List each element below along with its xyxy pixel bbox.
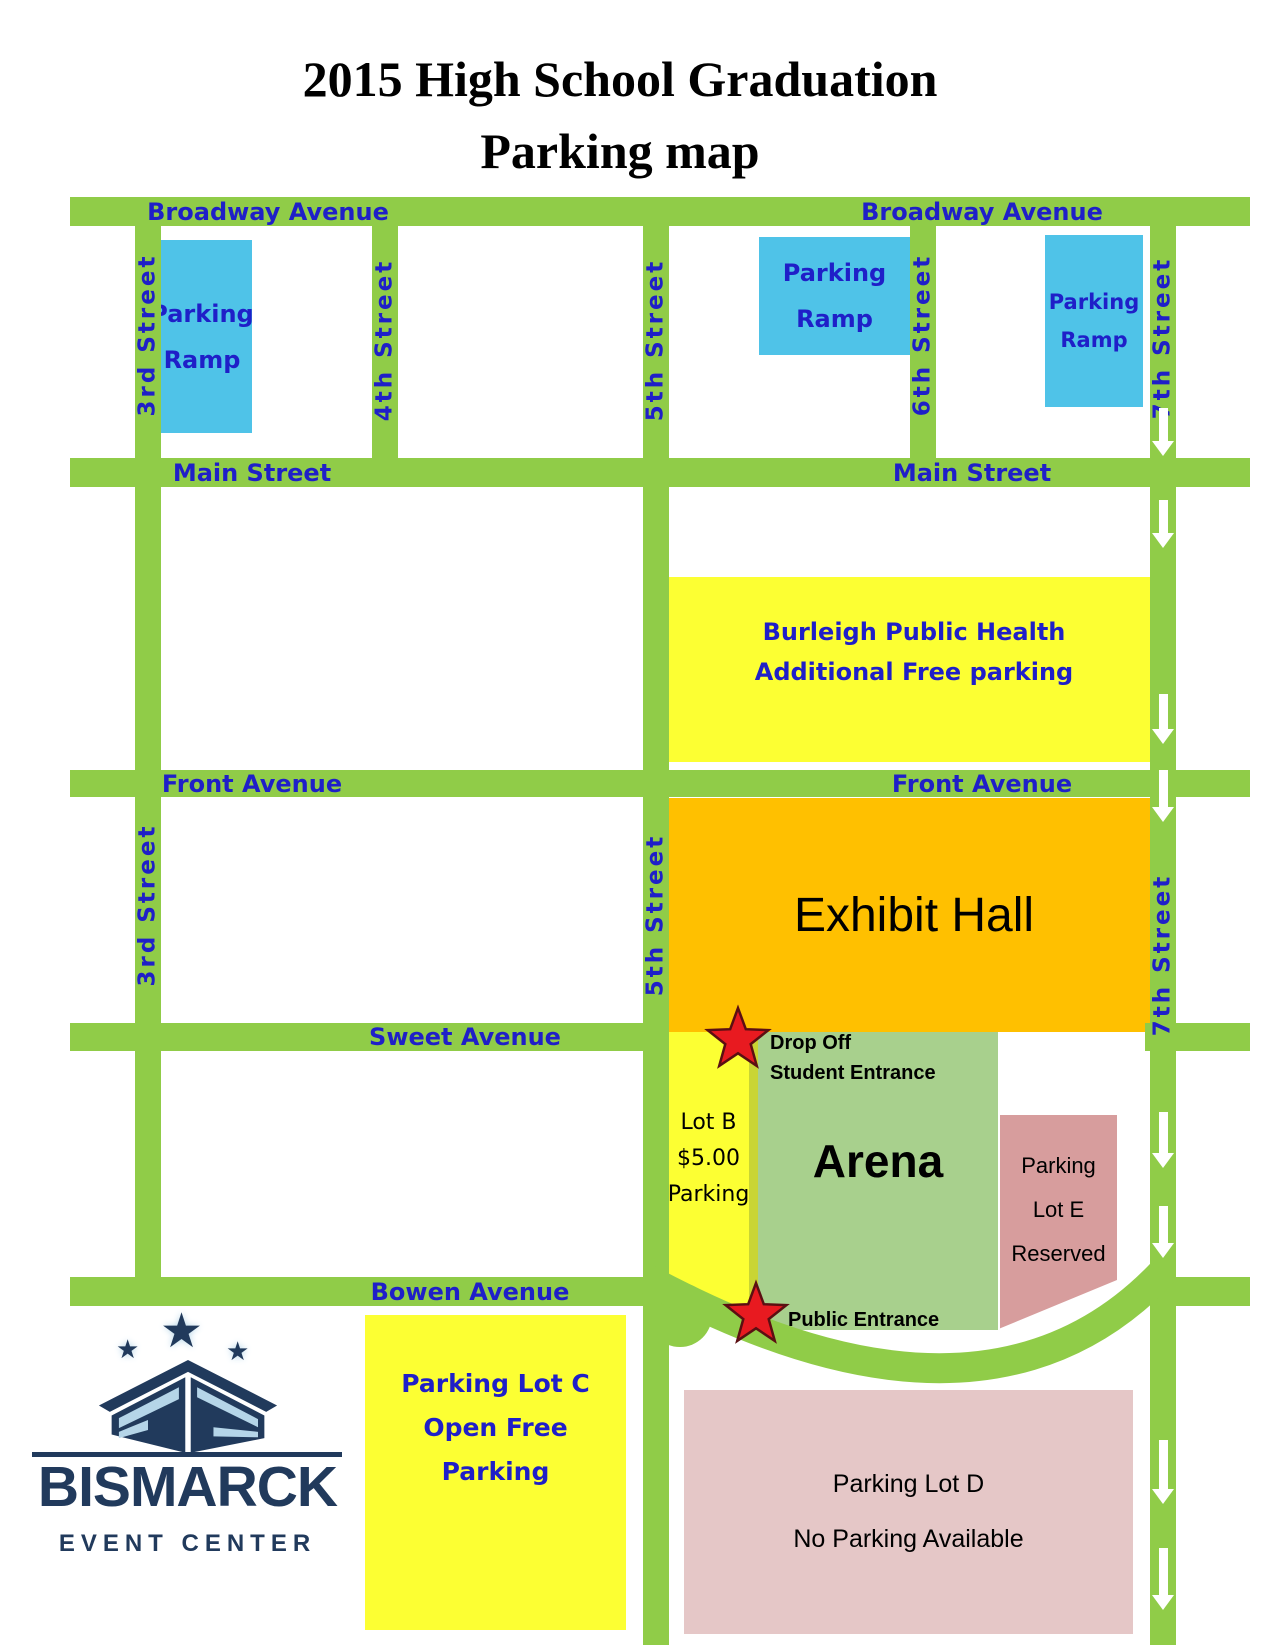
one-way-arrow-icon <box>1152 408 1174 456</box>
exhibit-hall: Exhibit Hall <box>668 798 1160 1032</box>
parking-ramp-1-label-line2: Ramp <box>164 346 241 374</box>
lot-b-label-line1: Lot B <box>680 1110 736 1135</box>
one-way-arrow-icon <box>1152 1206 1174 1258</box>
broadway-avenue-label-east: Broadway Avenue <box>861 200 1103 224</box>
parking-ramp-1: Parking Ramp <box>152 240 252 433</box>
arena-label: Arena <box>813 1134 943 1188</box>
one-way-arrow-icon <box>1152 770 1174 822</box>
sixth-street-label: 6th Street <box>912 254 935 416</box>
lot-e-label-line3: Reserved <box>1011 1241 1105 1267</box>
one-way-arrow-icon <box>1152 1440 1174 1504</box>
parking-lot-e: Parking Lot E Reserved <box>1000 1115 1117 1335</box>
burleigh-label-line2: Additional Free parking <box>755 658 1073 686</box>
parking-ramp-3-label-line2: Ramp <box>1060 328 1127 352</box>
parking-map-page: 2015 High School Graduation Parking map … <box>0 0 1275 1650</box>
drop-off-label: Drop Off Student Entrance <box>770 1028 936 1088</box>
arrow-head <box>1152 1489 1174 1504</box>
seventh-street-label-lower: 7th Street <box>1152 874 1175 1036</box>
arrow-head <box>1152 1153 1174 1168</box>
arrow-head <box>1152 729 1174 744</box>
broadway-avenue-label-west: Broadway Avenue <box>147 200 389 224</box>
one-way-arrow-icon <box>1152 1548 1174 1610</box>
arrow-head <box>1152 807 1174 822</box>
arrow-shaft <box>1159 408 1168 441</box>
map-title-line2: Parking map <box>0 122 1240 180</box>
lot-c-label-line3: Parking <box>442 1457 550 1486</box>
public-entrance-label: Public Entrance <box>788 1305 939 1335</box>
arrow-shaft <box>1159 694 1168 729</box>
logo-building-icon <box>92 1360 284 1460</box>
lot-b-label-line2: $5.00 <box>677 1146 740 1171</box>
drop-off-label-line1: Drop Off <box>770 1028 936 1058</box>
lot-c-label-line2: Open Free <box>423 1413 567 1442</box>
parking-ramp-2-label-line2: Ramp <box>796 305 873 333</box>
parking-lot-c: Parking Lot C Open Free Parking <box>365 1315 626 1630</box>
main-street-label-west: Main Street <box>173 461 331 485</box>
fourth-street-label: 4th Street <box>374 259 397 421</box>
lot-b-label-line3: Parking <box>668 1182 750 1207</box>
parking-ramp-3-label-line1: Parking <box>1049 290 1140 314</box>
sweet-avenue-label: Sweet Avenue <box>369 1025 561 1049</box>
bowen-avenue-road-east-stub <box>1176 1277 1250 1306</box>
parking-ramp-1-label-line1: Parking <box>150 300 253 328</box>
third-street-label-lower: 3rd Street <box>137 824 160 987</box>
one-way-arrow-icon <box>1152 694 1174 744</box>
lot-d-label-line2: No Parking Available <box>793 1525 1023 1554</box>
arrow-head <box>1152 441 1174 456</box>
arrow-head <box>1152 1243 1174 1258</box>
burleigh-public-health-lot: Burleigh Public Health Additional Free p… <box>668 577 1160 762</box>
arrow-shaft <box>1159 500 1168 533</box>
arrow-head <box>1152 1595 1174 1610</box>
lot-d-label-line1: Parking Lot D <box>833 1470 984 1499</box>
lot-e-label-line1: Parking <box>1021 1153 1096 1179</box>
fifth-street-label-upper: 5th Street <box>645 259 668 421</box>
logo-wordmark: BISMARCK <box>30 1459 345 1516</box>
bismarck-event-center-logo: ★ ★ ★ BISMARCK EVENT CENTER <box>30 1255 345 1600</box>
parking-ramp-3: Parking Ramp <box>1045 235 1143 407</box>
building-roof <box>99 1360 277 1412</box>
logo-subtitle: EVENT CENTER <box>30 1532 345 1556</box>
seventh-street-label-upper: 7th Street <box>1152 257 1175 419</box>
third-street-label-upper: 3rd Street <box>137 254 160 417</box>
one-way-arrow-icon <box>1152 1112 1174 1168</box>
star-shape <box>708 1008 769 1066</box>
drop-off-star-icon <box>700 1002 776 1078</box>
drop-off-label-line2: Student Entrance <box>770 1058 936 1088</box>
arrow-shaft <box>1159 1548 1168 1595</box>
front-avenue-label-west: Front Avenue <box>162 772 342 796</box>
arrow-shaft <box>1159 1112 1168 1153</box>
arrow-shaft <box>1159 1440 1168 1489</box>
fifth-street-label-lower: 5th Street <box>645 834 668 996</box>
star-shape <box>726 1283 787 1341</box>
lot-e-label-line2: Lot E <box>1033 1197 1084 1223</box>
map-title-line1: 2015 High School Graduation <box>0 50 1240 108</box>
logo-star-icon: ★ <box>160 1307 203 1355</box>
parking-ramp-2: Parking Ramp <box>759 237 910 355</box>
parking-ramp-2-label-line1: Parking <box>783 259 886 287</box>
burleigh-label-line1: Burleigh Public Health <box>763 618 1066 646</box>
exhibit-hall-label: Exhibit Hall <box>794 888 1034 943</box>
one-way-arrow-icon <box>1152 500 1174 548</box>
public-entrance-star-icon <box>718 1277 794 1353</box>
bowen-avenue-label: Bowen Avenue <box>371 1280 570 1304</box>
arrow-head <box>1152 533 1174 548</box>
main-street-label-east: Main Street <box>893 461 1051 485</box>
parking-lot-d: Parking Lot D No Parking Available <box>684 1390 1133 1634</box>
arrow-shaft <box>1159 770 1168 807</box>
arrow-shaft <box>1159 1206 1168 1243</box>
front-avenue-label-east: Front Avenue <box>892 772 1072 796</box>
lot-c-label-line1: Parking Lot C <box>401 1369 590 1398</box>
